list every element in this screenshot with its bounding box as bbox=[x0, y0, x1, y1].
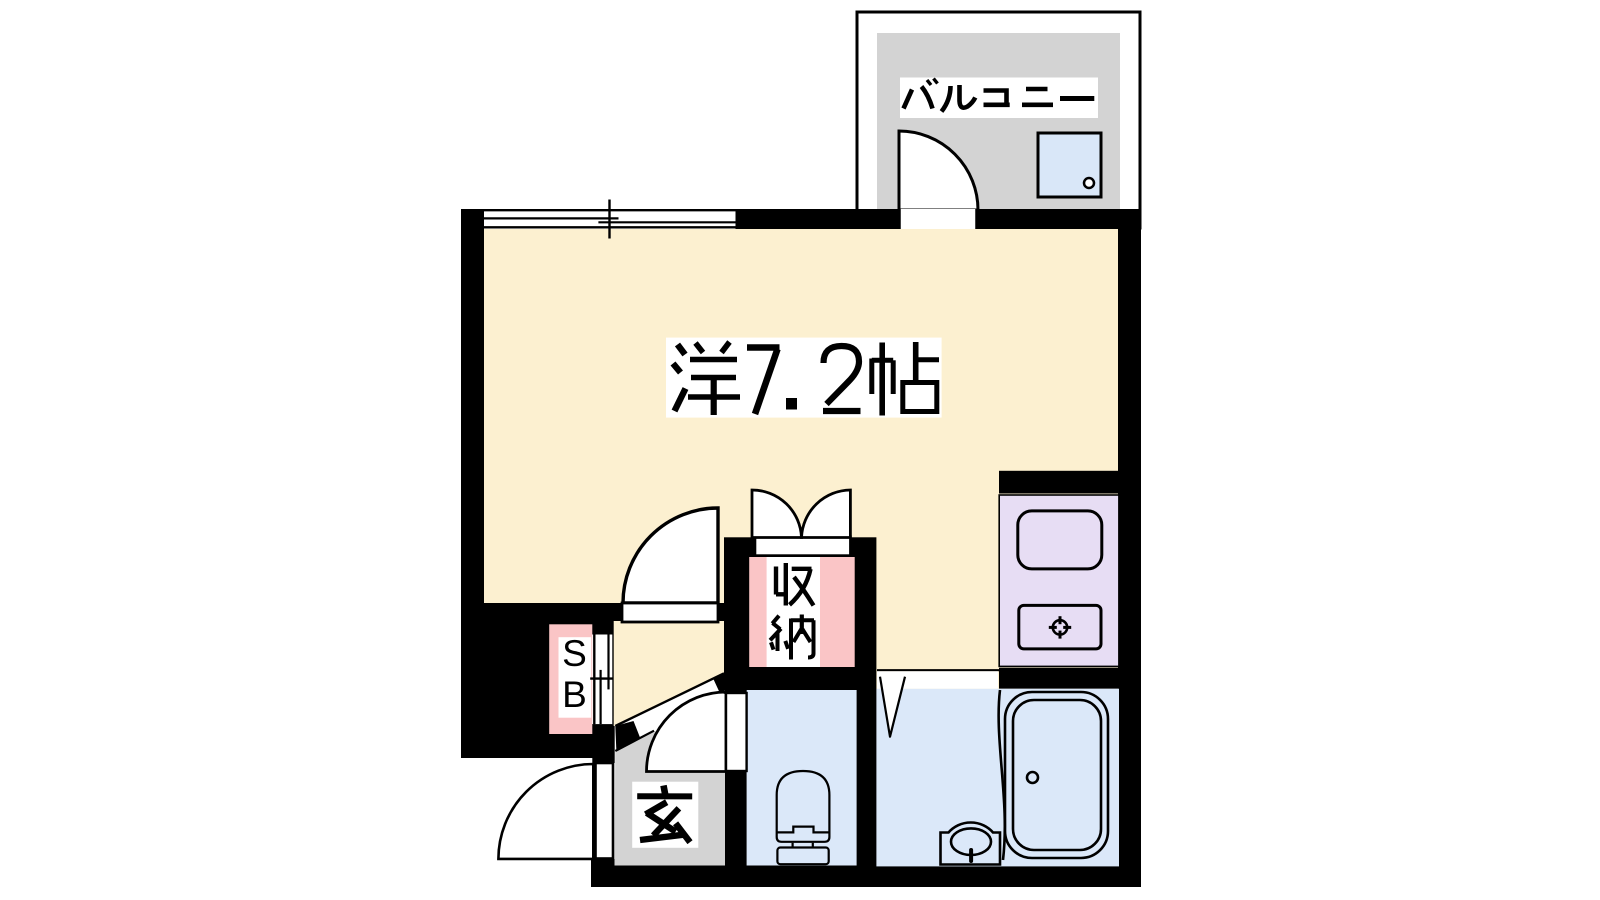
svg-text:S: S bbox=[562, 633, 587, 674]
svg-text:B: B bbox=[562, 674, 587, 715]
